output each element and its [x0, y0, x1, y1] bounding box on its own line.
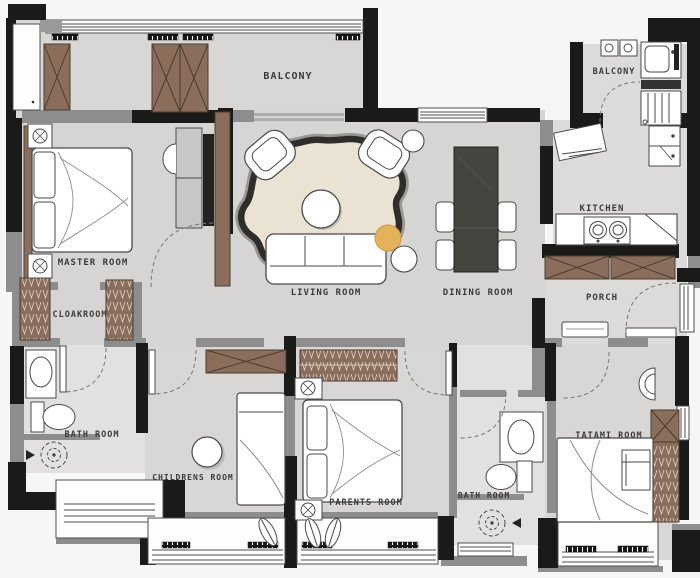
side-table-top	[402, 130, 424, 152]
bath2-toilet-tank	[517, 461, 532, 492]
washer	[601, 40, 618, 56]
label-balcony-left: BALCONY	[263, 71, 312, 82]
label-porch: PORCH	[586, 293, 618, 303]
master-pillow-2	[34, 202, 55, 248]
dining-chair-3	[498, 202, 516, 232]
bath1-toilet-bowl	[43, 405, 75, 430]
parents-wardrobe	[300, 350, 397, 381]
balcony-cabinet-middle	[152, 44, 208, 112]
parents-pillow-1	[307, 406, 327, 450]
bath2-toilet-bowl	[486, 465, 516, 490]
laundry-shelf	[641, 80, 681, 89]
window-tatami-bay	[558, 518, 658, 566]
cloakroom-wardrobe-left	[20, 278, 50, 340]
water-heater	[674, 44, 679, 70]
childrens-table	[192, 437, 222, 467]
master-pillow-1	[34, 152, 55, 198]
label-bath-room-2: BATH ROOM	[458, 491, 510, 500]
tatami-cabinet	[651, 410, 679, 442]
label-kitchen: KITCHEN	[580, 204, 625, 214]
dining-chair-4	[498, 240, 516, 270]
door-leaf-bath1	[60, 346, 66, 392]
window-dining-top	[418, 108, 487, 122]
door-leaf-parents	[446, 351, 452, 395]
coffee-table	[302, 190, 340, 228]
label-childrens-room: CHILDRENS ROOM	[152, 473, 233, 482]
dryer	[620, 40, 637, 56]
floor-plan: BALCONY MASTER ROOM CLOAKROOM BATH ROOM …	[0, 0, 700, 578]
drying-rack	[641, 91, 681, 125]
window-entry-side	[680, 284, 694, 332]
window-top-balcony	[46, 20, 363, 33]
label-cloakroom: CLOAKROOM	[52, 310, 107, 320]
label-parents-room: PARENTS ROOM	[329, 498, 402, 508]
sofa	[266, 234, 386, 284]
pouf	[375, 225, 401, 251]
label-living-room: LIVING ROOM	[291, 288, 362, 298]
label-bath-room-1: BATH ROOM	[64, 430, 119, 440]
tv-feature-wall	[215, 112, 230, 286]
dining-chair-1	[436, 202, 454, 232]
label-tatami-room: TATAMI ROOM	[575, 431, 642, 441]
label-balcony-right: BALCONY	[593, 67, 636, 77]
label-dining-room: DINING ROOM	[443, 288, 514, 298]
bath2-vanity	[500, 412, 543, 462]
window-bath2	[458, 543, 513, 556]
master-tv	[203, 134, 214, 226]
dining-table	[454, 147, 498, 272]
childrens-desk	[206, 350, 286, 373]
entry-door-leaf	[626, 328, 676, 337]
door-leaf-childrens	[149, 350, 155, 394]
parents-pillow-2	[307, 454, 327, 498]
dining-chair-2	[436, 240, 454, 270]
cloakroom-wardrobe-right	[106, 280, 133, 340]
side-table-bottom	[391, 246, 417, 272]
floor-plan-drawing: BALCONY MASTER ROOM CLOAKROOM BATH ROOM …	[0, 0, 700, 578]
label-master-room: MASTER ROOM	[58, 258, 129, 268]
balcony-cabinet-left	[44, 44, 70, 110]
window-bath1-bay	[56, 480, 163, 538]
bath1-toilet-tank	[31, 402, 44, 432]
tatami-wardrobe	[651, 442, 679, 522]
